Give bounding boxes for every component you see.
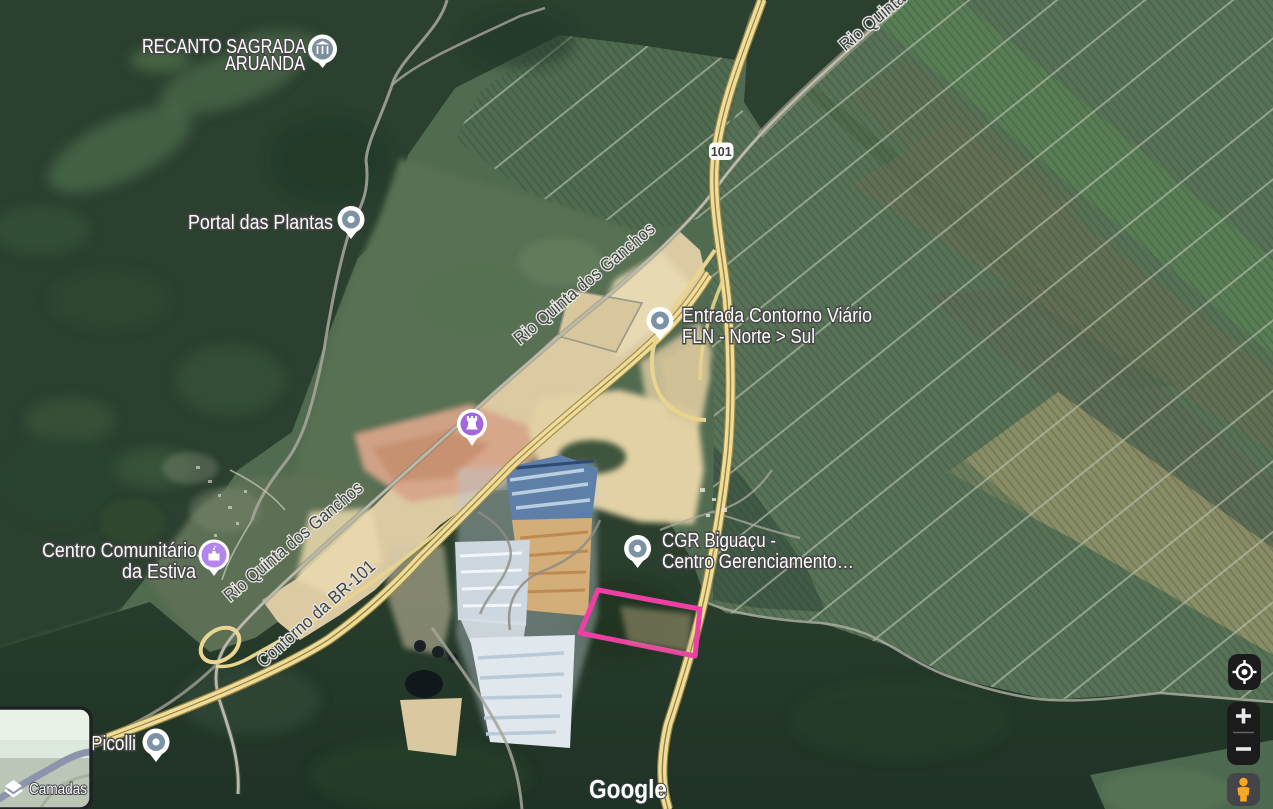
svg-text:Entrada Contorno Viário: Entrada Contorno Viário: [682, 305, 872, 327]
svg-text:CGR Biguaçu -: CGR Biguaçu -: [662, 530, 776, 552]
svg-text:Centro Comunitário: Centro Comunitário: [42, 540, 197, 562]
svg-text:Camadas: Camadas: [29, 781, 87, 798]
svg-text:FLN - Norte > Sul: FLN - Norte > Sul: [682, 326, 815, 348]
svg-text:Centro Gerenciamento…: Centro Gerenciamento…: [662, 551, 854, 573]
svg-text:Picolli: Picolli: [91, 733, 136, 755]
svg-text:Portal das Plantas: Portal das Plantas: [188, 212, 333, 234]
svg-text:da Estiva: da Estiva: [122, 561, 197, 583]
svg-text:Google: Google: [589, 776, 667, 804]
svg-text:ARUANDA: ARUANDA: [225, 53, 306, 75]
svg-text:101: 101: [711, 145, 732, 159]
